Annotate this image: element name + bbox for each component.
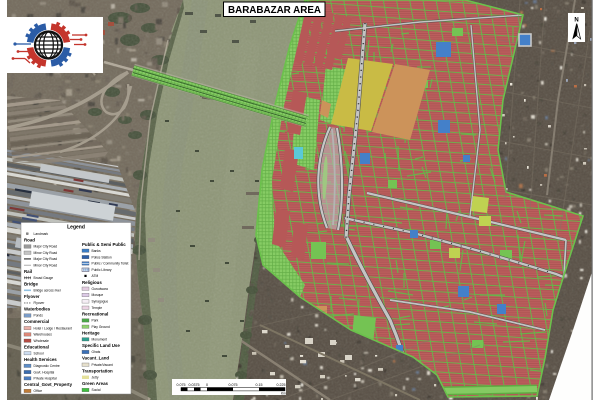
svg-text:Minor City Road: Minor City Road <box>34 264 58 268</box>
svg-text:Public / Community Toilet: Public / Community Toilet <box>92 262 129 266</box>
svg-text:Ghats: Ghats <box>92 350 101 354</box>
svg-text:Public Library: Public Library <box>92 268 112 272</box>
svg-text:Ponds: Ponds <box>34 314 44 318</box>
svg-text:Temple: Temple <box>92 306 103 310</box>
svg-text:Legend: Legend <box>67 225 85 231</box>
svg-text:Hotel / Lodge / Restaurant: Hotel / Lodge / Restaurant <box>34 326 73 330</box>
svg-text:0.15: 0.15 <box>256 383 263 387</box>
svg-text:Bridge across river: Bridge across river <box>34 289 62 293</box>
svg-text:Wholesale: Wholesale <box>34 339 50 343</box>
svg-text:Office: Office <box>34 389 43 393</box>
svg-text:Private Hospital: Private Hospital <box>34 377 57 381</box>
svg-text:Religious: Religious <box>82 280 102 285</box>
svg-text:Warehouses: Warehouses <box>34 333 53 337</box>
svg-text:Educational: Educational <box>24 344 49 349</box>
svg-text:Central_Govt_Property: Central_Govt_Property <box>24 382 73 387</box>
svg-text:Vacant_Land: Vacant_Land <box>82 356 109 361</box>
svg-text:Play Ground: Play Ground <box>92 325 110 329</box>
svg-text:Landmark: Landmark <box>34 232 49 236</box>
svg-text:Police Station: Police Station <box>92 255 112 259</box>
svg-text:Flyover: Flyover <box>34 301 46 305</box>
svg-text:Road: Road <box>24 238 35 243</box>
svg-text:Banks: Banks <box>92 249 102 253</box>
svg-text:Recreational: Recreational <box>82 311 108 316</box>
svg-text:Govt. Hospital: Govt. Hospital <box>34 370 55 374</box>
svg-text:School: School <box>34 351 44 355</box>
svg-text:Gurudwara: Gurudwara <box>92 287 108 291</box>
svg-text:Jetty: Jetty <box>92 376 99 380</box>
svg-text:BARABAZAR AREA: BARABAZAR AREA <box>228 4 321 16</box>
svg-text:0: 0 <box>206 383 208 387</box>
svg-text:Transportation: Transportation <box>82 368 113 373</box>
svg-text:Monument: Monument <box>92 338 108 342</box>
svg-text:Km: Km <box>281 391 286 395</box>
svg-text:Heritage: Heritage <box>82 330 100 335</box>
svg-text:0.0375: 0.0375 <box>189 383 200 387</box>
svg-text:Green Areas: Green Areas <box>82 381 109 386</box>
svg-text:ATM: ATM <box>92 274 99 278</box>
svg-text:Bridge: Bridge <box>24 282 38 287</box>
svg-text:0.225: 0.225 <box>277 383 286 387</box>
svg-text:Health Services: Health Services <box>24 357 57 362</box>
svg-text:Diagnostic Centre: Diagnostic Centre <box>34 364 60 368</box>
svg-text:Social: Social <box>92 388 101 392</box>
svg-text:Flyover: Flyover <box>24 294 40 299</box>
svg-text:Waterbodies: Waterbodies <box>24 307 51 312</box>
svg-text:Rail: Rail <box>24 269 32 274</box>
svg-text:Specific Land Use: Specific Land Use <box>82 343 120 348</box>
svg-text:Minor City Road: Minor City Road <box>34 251 58 255</box>
svg-text:0.075: 0.075 <box>229 383 238 387</box>
svg-text:Mosque: Mosque <box>92 293 104 297</box>
svg-text:Major City Road: Major City Road <box>34 257 58 261</box>
svg-text:Park: Park <box>92 319 99 323</box>
svg-text:Private/Vacant: Private/Vacant <box>92 363 113 367</box>
svg-text:0.075: 0.075 <box>177 383 186 387</box>
svg-text:Synagogue: Synagogue <box>92 300 109 304</box>
svg-text:Major City Road: Major City Road <box>34 245 58 249</box>
svg-text:Public & Semi Public: Public & Semi Public <box>82 242 126 247</box>
svg-text:Broad Gauge: Broad Gauge <box>34 276 54 280</box>
svg-text:Commercial: Commercial <box>24 319 49 324</box>
